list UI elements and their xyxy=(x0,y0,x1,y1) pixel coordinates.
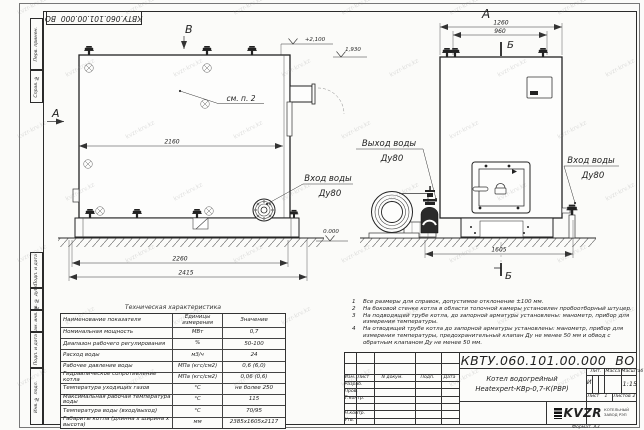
section-letter-a-left: А xyxy=(51,107,60,120)
dim-1260: 1260 xyxy=(493,20,508,27)
sheet-value: 1 xyxy=(605,395,608,400)
drawing-sheet: КВТУ.060.101.00.000 ВО Перв. примен. Спр… xyxy=(0,0,644,430)
product-name-line1: Котел водогрейный xyxy=(486,375,557,384)
tech-characteristics-table: Техническая характеристика Наименование … xyxy=(60,304,286,429)
kvzr-logo-text: KVZR xyxy=(564,406,603,420)
control-box xyxy=(527,77,552,98)
list-item: 1Все размеры для справок, допустимое отк… xyxy=(352,299,636,306)
side-bracket xyxy=(73,189,79,202)
tech-table-header-row: Наименование показателя Единицы измерени… xyxy=(61,314,285,328)
inlet-label: Вход воды xyxy=(304,174,352,184)
title-block: Изм. Лист N докум. Подп. Дата Разраб. Пр… xyxy=(344,352,638,425)
tech-header-name: Наименование показателя xyxy=(61,314,173,327)
top-valve-3 xyxy=(247,46,257,55)
sign-row-razrab: Разраб. xyxy=(345,383,363,388)
table-row: Диапазон рабочего регулирования%50-100 xyxy=(61,339,285,350)
outlet-label: Выход воды xyxy=(362,139,416,149)
sign-row-nkontr: Н.контр. xyxy=(345,412,366,417)
dim-2415: 2415 xyxy=(178,270,193,277)
side-view xyxy=(369,44,578,262)
table-row: Габариты котла (длинна х ширина х высота… xyxy=(61,418,285,428)
ground-hatching xyxy=(58,238,596,247)
list-item: 3На подводящей трубе котла, до запорной … xyxy=(352,313,636,327)
rev-header-list: Лист xyxy=(358,376,370,381)
sign-row-utv: Утв. xyxy=(345,419,355,424)
elevation-flue: 1,930 xyxy=(345,47,361,53)
view-letter-b-top: В xyxy=(185,23,193,36)
table-row: Номинальная мощностьМВт0,7 xyxy=(61,328,285,339)
outlet-dn: Ду80 xyxy=(380,154,404,164)
sheet-label: Лист xyxy=(588,395,600,400)
inlet2-dn: Ду80 xyxy=(581,171,605,181)
rev-header-podp: Подп. xyxy=(421,376,435,381)
sheets-value: 2 xyxy=(633,395,636,400)
tech-header-units: Единицы измерения xyxy=(173,314,223,327)
side-base xyxy=(461,218,553,237)
furnace-door xyxy=(472,162,530,213)
door-handle xyxy=(473,187,488,191)
note-ref-label: см. п. 2 xyxy=(227,94,256,103)
top-valve-2 xyxy=(202,46,212,55)
side-inlet-valve xyxy=(562,205,578,238)
scale-value: 1:15 xyxy=(623,380,638,388)
section-letter-b-top: Б xyxy=(507,40,514,51)
dim-1605: 1605 xyxy=(491,247,506,254)
mass-label: Масса xyxy=(606,370,621,375)
notes-list: 1Все размеры для справок, допустимое отк… xyxy=(352,299,636,347)
inlet2-label: Вход воды xyxy=(567,156,615,166)
dim-960: 960 xyxy=(494,28,506,35)
table-row: Расход водым3/ч24 xyxy=(61,350,285,361)
rev-header-ndocum: N докум. xyxy=(382,376,403,381)
table-row: Максимальная рабочая температура воды°С1… xyxy=(61,395,285,406)
side-tap xyxy=(290,210,299,218)
doc-number: КВТУ.060.101.00.000 ВО xyxy=(459,352,638,368)
rev-header-izm: Изм. xyxy=(345,376,356,381)
top-valve-1 xyxy=(84,46,94,55)
dim-2160: 2160 xyxy=(164,139,179,146)
outlet-pump xyxy=(421,186,438,233)
table-row: Гидравлическое сопротивление котлаМПа (к… xyxy=(61,373,285,384)
tech-table-title: Техническая характеристика xyxy=(60,304,286,313)
list-item: 2На боковой стенке котла в области топоч… xyxy=(352,306,636,313)
sheets-label: Листов xyxy=(614,395,631,400)
manufacturer-logo: KVZR КОТЕЛЬНЫЙ ЗАВОД РЭП xyxy=(546,401,638,425)
lit-label: Лит. xyxy=(591,370,602,375)
rev-header-data: Дата xyxy=(444,376,456,381)
lit-value: И xyxy=(587,379,592,386)
tech-header-value: Значение xyxy=(223,314,285,327)
inlet-dn: Ду80 xyxy=(318,189,342,199)
product-name-line2: Heatexpert-КВр-0,7-К(РВР) xyxy=(475,385,568,394)
inlet-flange xyxy=(253,199,275,221)
list-item: 4На отводящей трубе котла до запорной ар… xyxy=(352,326,636,346)
dim-2260: 2260 xyxy=(172,256,187,263)
kvzr-logo-subtitle: КОТЕЛЬНЫЙ ЗАВОД РЭП xyxy=(604,408,629,417)
sign-row-prov: Пров. xyxy=(345,390,358,395)
flue-outlet xyxy=(287,84,344,136)
section-letter-b-bottom: Б xyxy=(505,271,512,282)
sign-row-tkontr: Т.контр. xyxy=(345,397,365,402)
elevation-top: +2,100 xyxy=(305,37,326,43)
product-name: Котел водогрейный Heatexpert-КВр-0,7-К(Р… xyxy=(459,368,586,401)
front-view xyxy=(73,46,344,237)
elevation-zero: 0.000 xyxy=(323,229,339,235)
view-letter-a-right: А xyxy=(481,7,490,21)
kvzr-logo-icon xyxy=(554,408,562,419)
scale-label: Масштаб xyxy=(622,370,644,375)
